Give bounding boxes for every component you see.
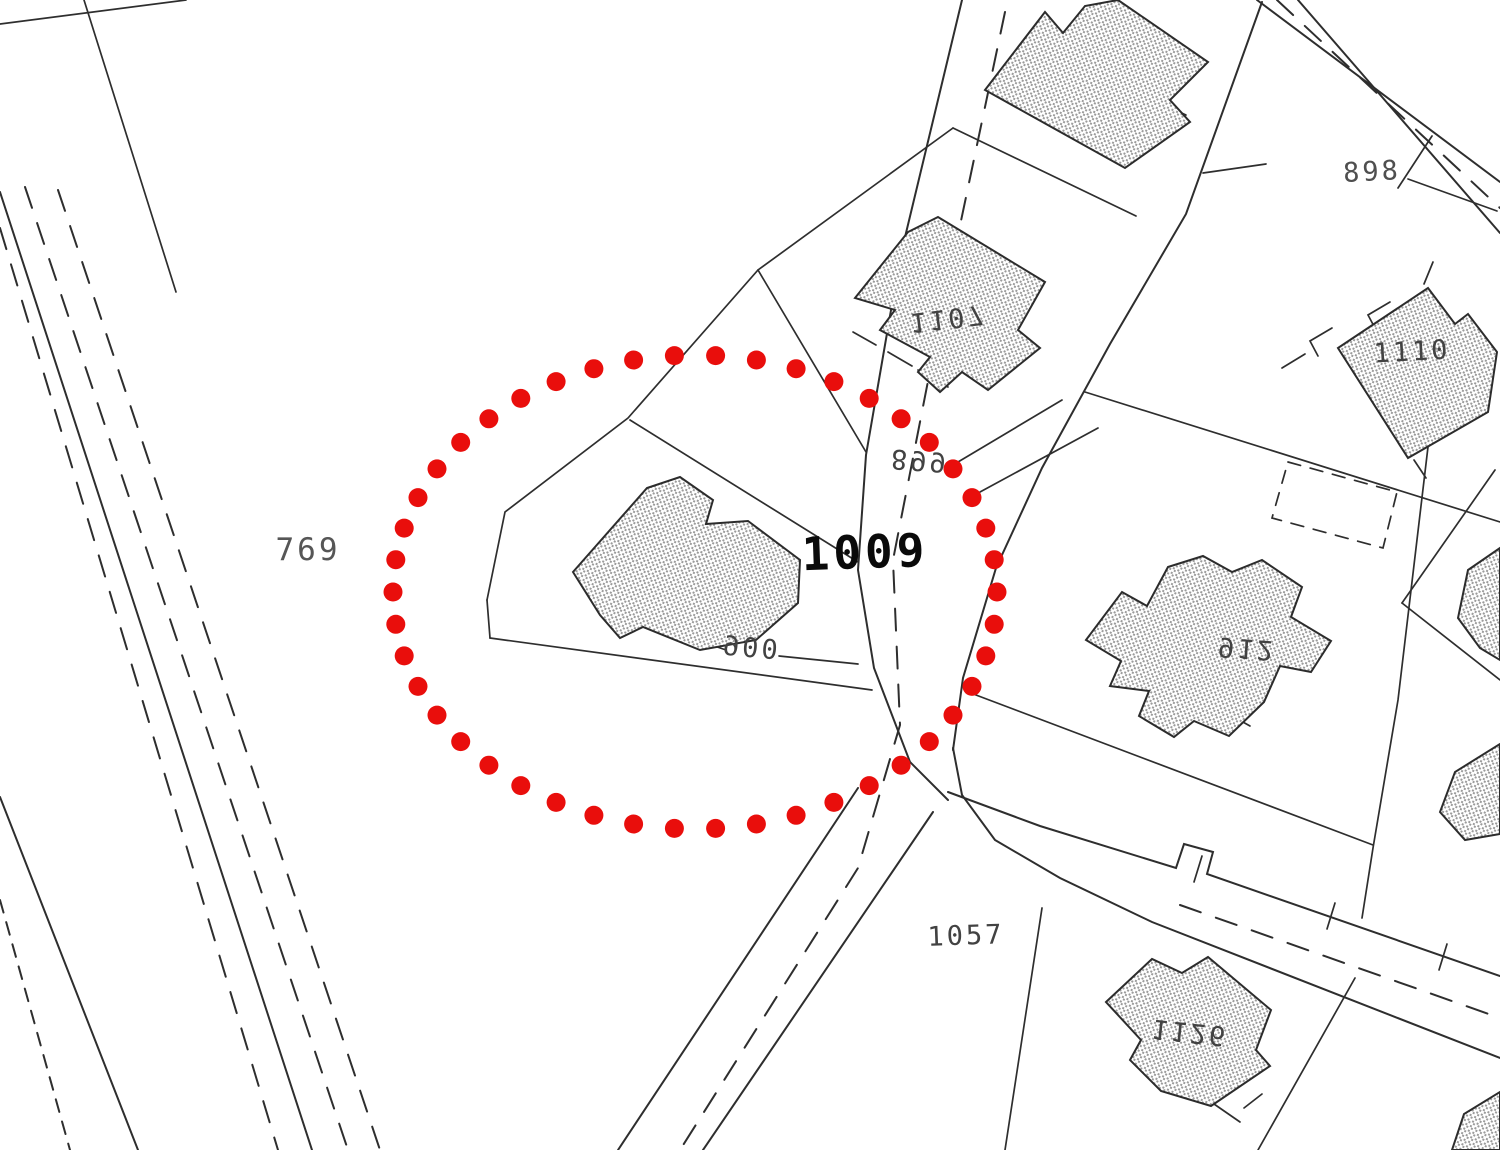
building-1110 — [1338, 288, 1497, 458]
highlight-dot — [624, 351, 643, 370]
building-right-partial-1 — [1458, 548, 1500, 660]
highlight-dot — [386, 550, 405, 569]
highlight-dot — [860, 776, 879, 795]
highlight-dot — [944, 706, 963, 725]
highlight-dot — [860, 389, 879, 408]
highlight-dot — [892, 409, 911, 428]
highlight-dot — [787, 359, 806, 378]
highlight-dot — [976, 646, 995, 665]
highlight-dot — [409, 677, 428, 696]
parcel-label-900: 900 — [722, 628, 782, 664]
highlight-dot — [824, 372, 843, 391]
highlight-dot — [976, 519, 995, 538]
highlight-dot — [944, 459, 963, 478]
highlight-dot — [451, 433, 470, 452]
highlight-dot — [511, 776, 530, 795]
highlight-dot — [787, 806, 806, 825]
building-912 — [1086, 556, 1331, 737]
highlight-dot — [384, 583, 403, 602]
highlight-dot — [584, 806, 603, 825]
highlight-dot — [706, 819, 725, 838]
highlight-dot — [624, 815, 643, 834]
building-top — [985, 0, 1208, 168]
highlight-dot — [665, 346, 684, 365]
highlight-dot — [428, 459, 447, 478]
building-right-partial-2 — [1440, 744, 1500, 840]
parcel-label-1009: 1009 — [801, 523, 930, 581]
parcel-label-899: 899 — [890, 443, 950, 478]
highlight-dot — [747, 815, 766, 834]
highlight-dot — [428, 706, 447, 725]
highlight-dot — [547, 372, 566, 391]
highlight-dot — [824, 793, 843, 812]
parcel-label-1057: 1057 — [927, 919, 1005, 953]
highlight-dot — [547, 793, 566, 812]
highlight-dot — [584, 359, 603, 378]
building-1009 — [573, 477, 800, 650]
highlight-dot — [386, 615, 405, 634]
parcel-label-1110: 1110 — [1373, 335, 1452, 370]
highlight-dot — [963, 677, 982, 696]
highlight-dot — [706, 346, 725, 365]
highlight-dot — [920, 732, 939, 751]
highlight-dot — [511, 389, 530, 408]
highlight-dot — [479, 756, 498, 775]
highlight-dot — [747, 351, 766, 370]
highlight-dot — [451, 732, 470, 751]
highlight-dot — [395, 646, 414, 665]
highlight-dot — [409, 488, 428, 507]
top-right-road — [1203, 0, 1500, 233]
parcel-label-769: 769 — [276, 532, 341, 568]
highlight-dot — [985, 615, 1004, 634]
cadastral-map: 898 1107 1110 899 1009 769 900 912 1057 … — [0, 0, 1500, 1150]
highlight-dot — [988, 583, 1007, 602]
cadastral-map-canvas[interactable]: 898 1107 1110 899 1009 769 900 912 1057 … — [0, 0, 1500, 1150]
highlight-dot — [395, 519, 414, 538]
highlight-dot — [920, 433, 939, 452]
highlight-dot — [665, 819, 684, 838]
highlight-dot — [985, 550, 1004, 569]
parcel-label-912: 912 — [1217, 631, 1277, 666]
parcel-label-898: 898 — [1342, 155, 1401, 189]
building-bottom-right-partial — [1452, 1092, 1500, 1150]
highlight-dot — [479, 409, 498, 428]
highlight-dot — [892, 756, 911, 775]
highlight-dot — [963, 488, 982, 507]
left-road — [0, 187, 380, 1150]
